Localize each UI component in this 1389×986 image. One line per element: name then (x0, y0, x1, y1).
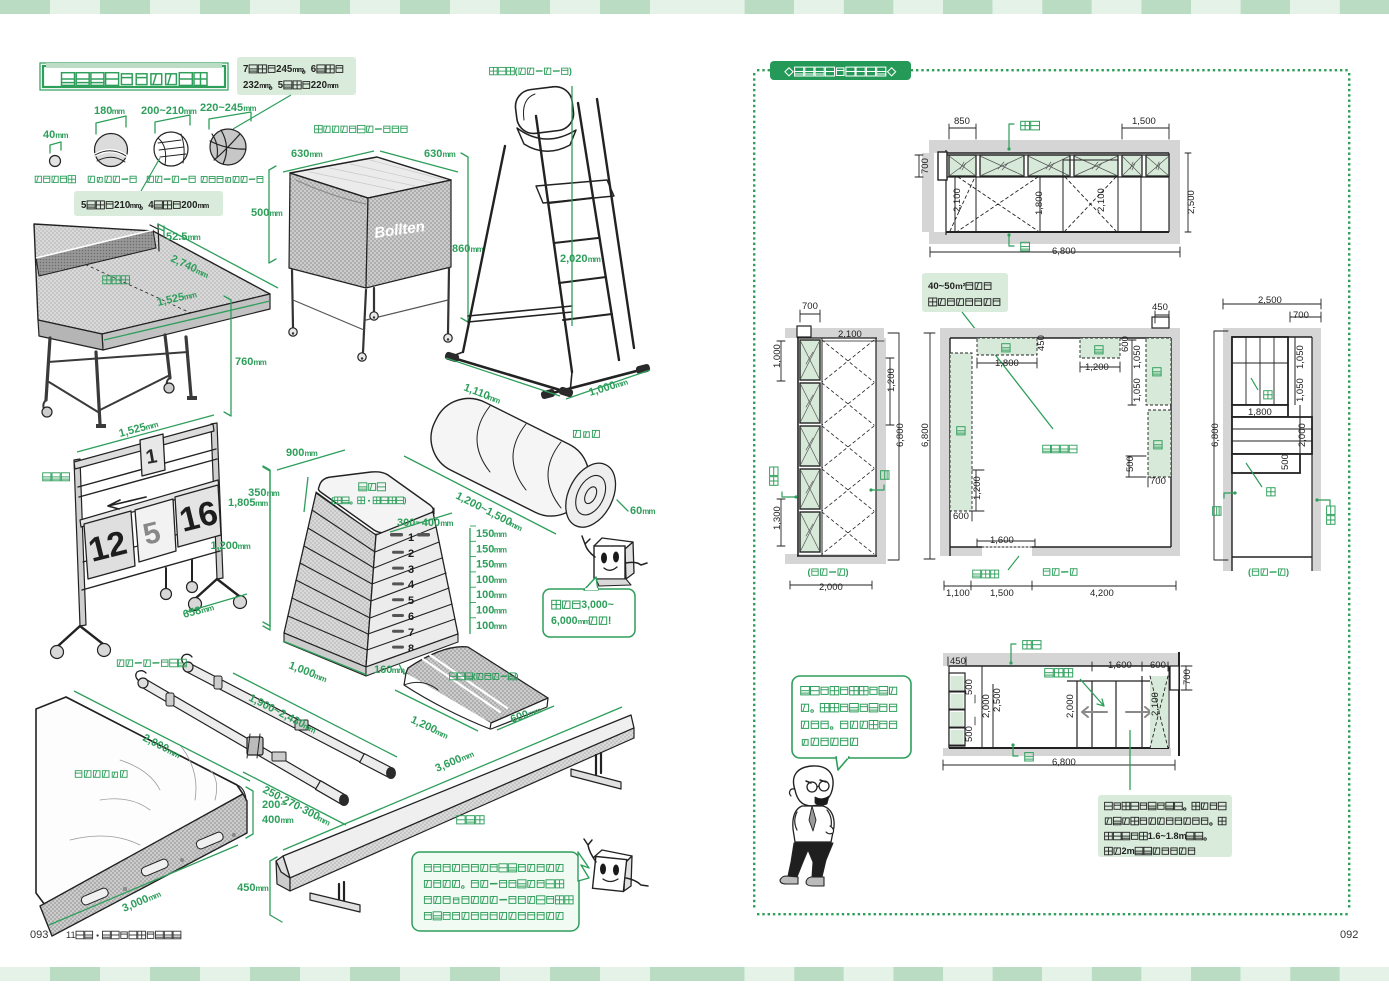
svg-text:220: 220 (311, 80, 327, 91)
svg-text:mm: mm (256, 884, 269, 893)
svg-text:2,100: 2,100 (1150, 692, 1161, 716)
svg-text:850: 850 (954, 116, 970, 127)
svg-text:3: 3 (408, 564, 414, 576)
svg-text:2m: 2m (1122, 846, 1135, 856)
svg-text:860: 860 (452, 243, 470, 255)
svg-text:(: ( (473, 671, 476, 681)
svg-text:2,000: 2,000 (819, 582, 843, 593)
svg-text:2,100: 2,100 (952, 188, 963, 212)
svg-text:mm: mm (198, 203, 209, 210)
svg-text:mm: mm (494, 607, 507, 616)
svg-text:2,020: 2,020 (560, 253, 588, 265)
svg-text:mm: mm (494, 561, 507, 570)
svg-text:1,200: 1,200 (972, 476, 983, 500)
svg-text:mm: mm (267, 489, 280, 498)
svg-text:200~210: 200~210 (141, 105, 184, 117)
svg-text:mm: mm (238, 542, 251, 551)
svg-text:mm: mm (642, 507, 655, 516)
svg-text:7: 7 (408, 627, 414, 639)
svg-text:150: 150 (476, 543, 494, 555)
svg-text:mm: mm (327, 83, 338, 90)
svg-text:1,800: 1,800 (1034, 191, 1045, 215)
svg-text:m²: m² (955, 281, 966, 291)
svg-text:500: 500 (964, 726, 975, 742)
svg-text:6,800: 6,800 (895, 423, 906, 447)
svg-text:200: 200 (181, 200, 197, 211)
svg-text:2: 2 (408, 548, 414, 560)
svg-text:1,600: 1,600 (990, 535, 1014, 546)
svg-text:450: 450 (1036, 335, 1047, 351)
svg-text:1,050: 1,050 (1132, 345, 1143, 369)
svg-text:1,050: 1,050 (1132, 378, 1143, 402)
svg-text:450: 450 (237, 882, 255, 894)
svg-text:350: 350 (248, 487, 266, 499)
svg-text:): ) (846, 567, 849, 577)
svg-text:093: 093 (30, 929, 48, 941)
svg-text:mm: mm (588, 255, 601, 264)
svg-text:1,050: 1,050 (1295, 345, 1306, 369)
svg-text:180: 180 (94, 105, 112, 117)
svg-text:mm: mm (310, 150, 323, 159)
svg-text:2,500: 2,500 (992, 688, 1003, 712)
svg-text:52.5: 52.5 (166, 231, 187, 243)
svg-text:): ) (516, 671, 519, 681)
svg-text:): ) (569, 66, 572, 76)
svg-text:600: 600 (1150, 660, 1166, 671)
svg-text:mm: mm (270, 209, 283, 218)
svg-text:500: 500 (1125, 456, 1136, 472)
svg-text:1,800: 1,800 (995, 358, 1019, 369)
svg-text:6: 6 (408, 611, 414, 623)
svg-text:mm: mm (281, 816, 294, 825)
svg-text:mm: mm (494, 622, 507, 631)
svg-text:5: 5 (278, 80, 284, 91)
svg-text:630: 630 (291, 148, 309, 160)
svg-text:500: 500 (1280, 454, 1291, 470)
svg-text:mm: mm (443, 150, 456, 159)
svg-text:mm: mm (305, 449, 318, 458)
svg-text:450: 450 (1152, 302, 1168, 313)
svg-text:700: 700 (920, 158, 931, 174)
svg-text:(: ( (331, 496, 334, 505)
svg-text:4: 4 (408, 579, 415, 591)
svg-text:mm: mm (392, 666, 405, 675)
svg-text:1,200: 1,200 (211, 540, 239, 552)
svg-text:092: 092 (1340, 929, 1358, 941)
svg-text:1,500: 1,500 (1132, 116, 1156, 127)
svg-text:11: 11 (66, 930, 76, 940)
svg-text:2,100: 2,100 (838, 329, 862, 340)
svg-text:mm: mm (259, 83, 270, 90)
svg-text:1,050: 1,050 (1295, 378, 1306, 402)
svg-text:mm: mm (292, 67, 303, 74)
svg-text:2,000: 2,000 (981, 694, 992, 718)
svg-text:1,100: 1,100 (946, 588, 970, 599)
svg-text:1,200: 1,200 (1085, 362, 1109, 373)
svg-text:200~: 200~ (262, 799, 287, 811)
svg-text:mm: mm (471, 245, 484, 254)
svg-text:700: 700 (1293, 310, 1309, 321)
svg-text:6,000: 6,000 (551, 615, 578, 627)
svg-text:5: 5 (81, 200, 87, 211)
svg-text:2,000: 2,000 (1297, 423, 1308, 447)
svg-text:630: 630 (424, 148, 442, 160)
svg-text:mm: mm (494, 591, 507, 600)
svg-text:100: 100 (476, 605, 494, 617)
svg-text:1.6~1.8m: 1.6~1.8m (1148, 831, 1187, 841)
svg-text:245: 245 (276, 64, 293, 75)
svg-text:150: 150 (476, 528, 494, 540)
svg-text:(: ( (515, 66, 518, 76)
svg-text:6: 6 (311, 64, 317, 75)
svg-text:!: ! (608, 615, 612, 627)
svg-text:210: 210 (114, 200, 130, 211)
svg-text:): ) (1286, 567, 1289, 577)
svg-text:6,800: 6,800 (1052, 246, 1076, 257)
svg-text:mm: mm (130, 203, 141, 210)
svg-text:60: 60 (630, 505, 642, 517)
svg-text:mm: mm (494, 576, 507, 585)
svg-text:220~245: 220~245 (200, 102, 243, 114)
svg-text:5: 5 (408, 595, 414, 607)
svg-text:2,000: 2,000 (1065, 694, 1076, 718)
svg-text:3,000~: 3,000~ (581, 599, 614, 611)
svg-text:150: 150 (476, 559, 494, 571)
svg-text:mm: mm (578, 617, 591, 626)
svg-text:mm: mm (494, 530, 507, 539)
svg-text:600: 600 (1120, 336, 1131, 352)
svg-text:700: 700 (1150, 476, 1166, 487)
svg-text:700: 700 (802, 301, 818, 312)
svg-text:100: 100 (476, 589, 494, 601)
svg-text:6,800: 6,800 (1052, 757, 1076, 768)
svg-text:mm: mm (440, 519, 453, 528)
svg-text:6,800: 6,800 (920, 423, 931, 447)
svg-text:900: 900 (286, 447, 304, 459)
svg-text:mm: mm (254, 358, 267, 367)
svg-text:500: 500 (251, 207, 269, 219)
svg-text:7: 7 (243, 64, 248, 75)
svg-text:500: 500 (964, 679, 975, 695)
svg-text:mm: mm (255, 499, 268, 508)
svg-text:160: 160 (374, 664, 392, 676)
svg-text:6,800: 6,800 (1210, 423, 1221, 447)
svg-text:400: 400 (262, 814, 280, 826)
svg-text:2,100: 2,100 (1096, 188, 1107, 212)
svg-text:40: 40 (43, 129, 55, 141)
svg-text:1,500: 1,500 (990, 588, 1014, 599)
svg-text:4,200: 4,200 (1090, 588, 1114, 599)
svg-text:): ) (404, 496, 407, 505)
svg-text:600: 600 (953, 511, 969, 522)
svg-text:232: 232 (243, 80, 259, 91)
svg-text:450: 450 (950, 656, 966, 667)
svg-text:mm: mm (494, 545, 507, 554)
svg-text:mm: mm (112, 107, 125, 116)
svg-text:700: 700 (1182, 669, 1193, 685)
svg-text:100: 100 (476, 574, 494, 586)
svg-text:40~50: 40~50 (928, 281, 955, 292)
svg-text:100: 100 (476, 620, 494, 632)
svg-text:4: 4 (148, 200, 154, 211)
svg-text:1,200: 1,200 (886, 368, 897, 392)
svg-text:1,600: 1,600 (1108, 660, 1132, 671)
svg-text:760: 760 (235, 356, 253, 368)
svg-text:1: 1 (408, 532, 414, 544)
svg-text:mm: mm (55, 131, 68, 140)
